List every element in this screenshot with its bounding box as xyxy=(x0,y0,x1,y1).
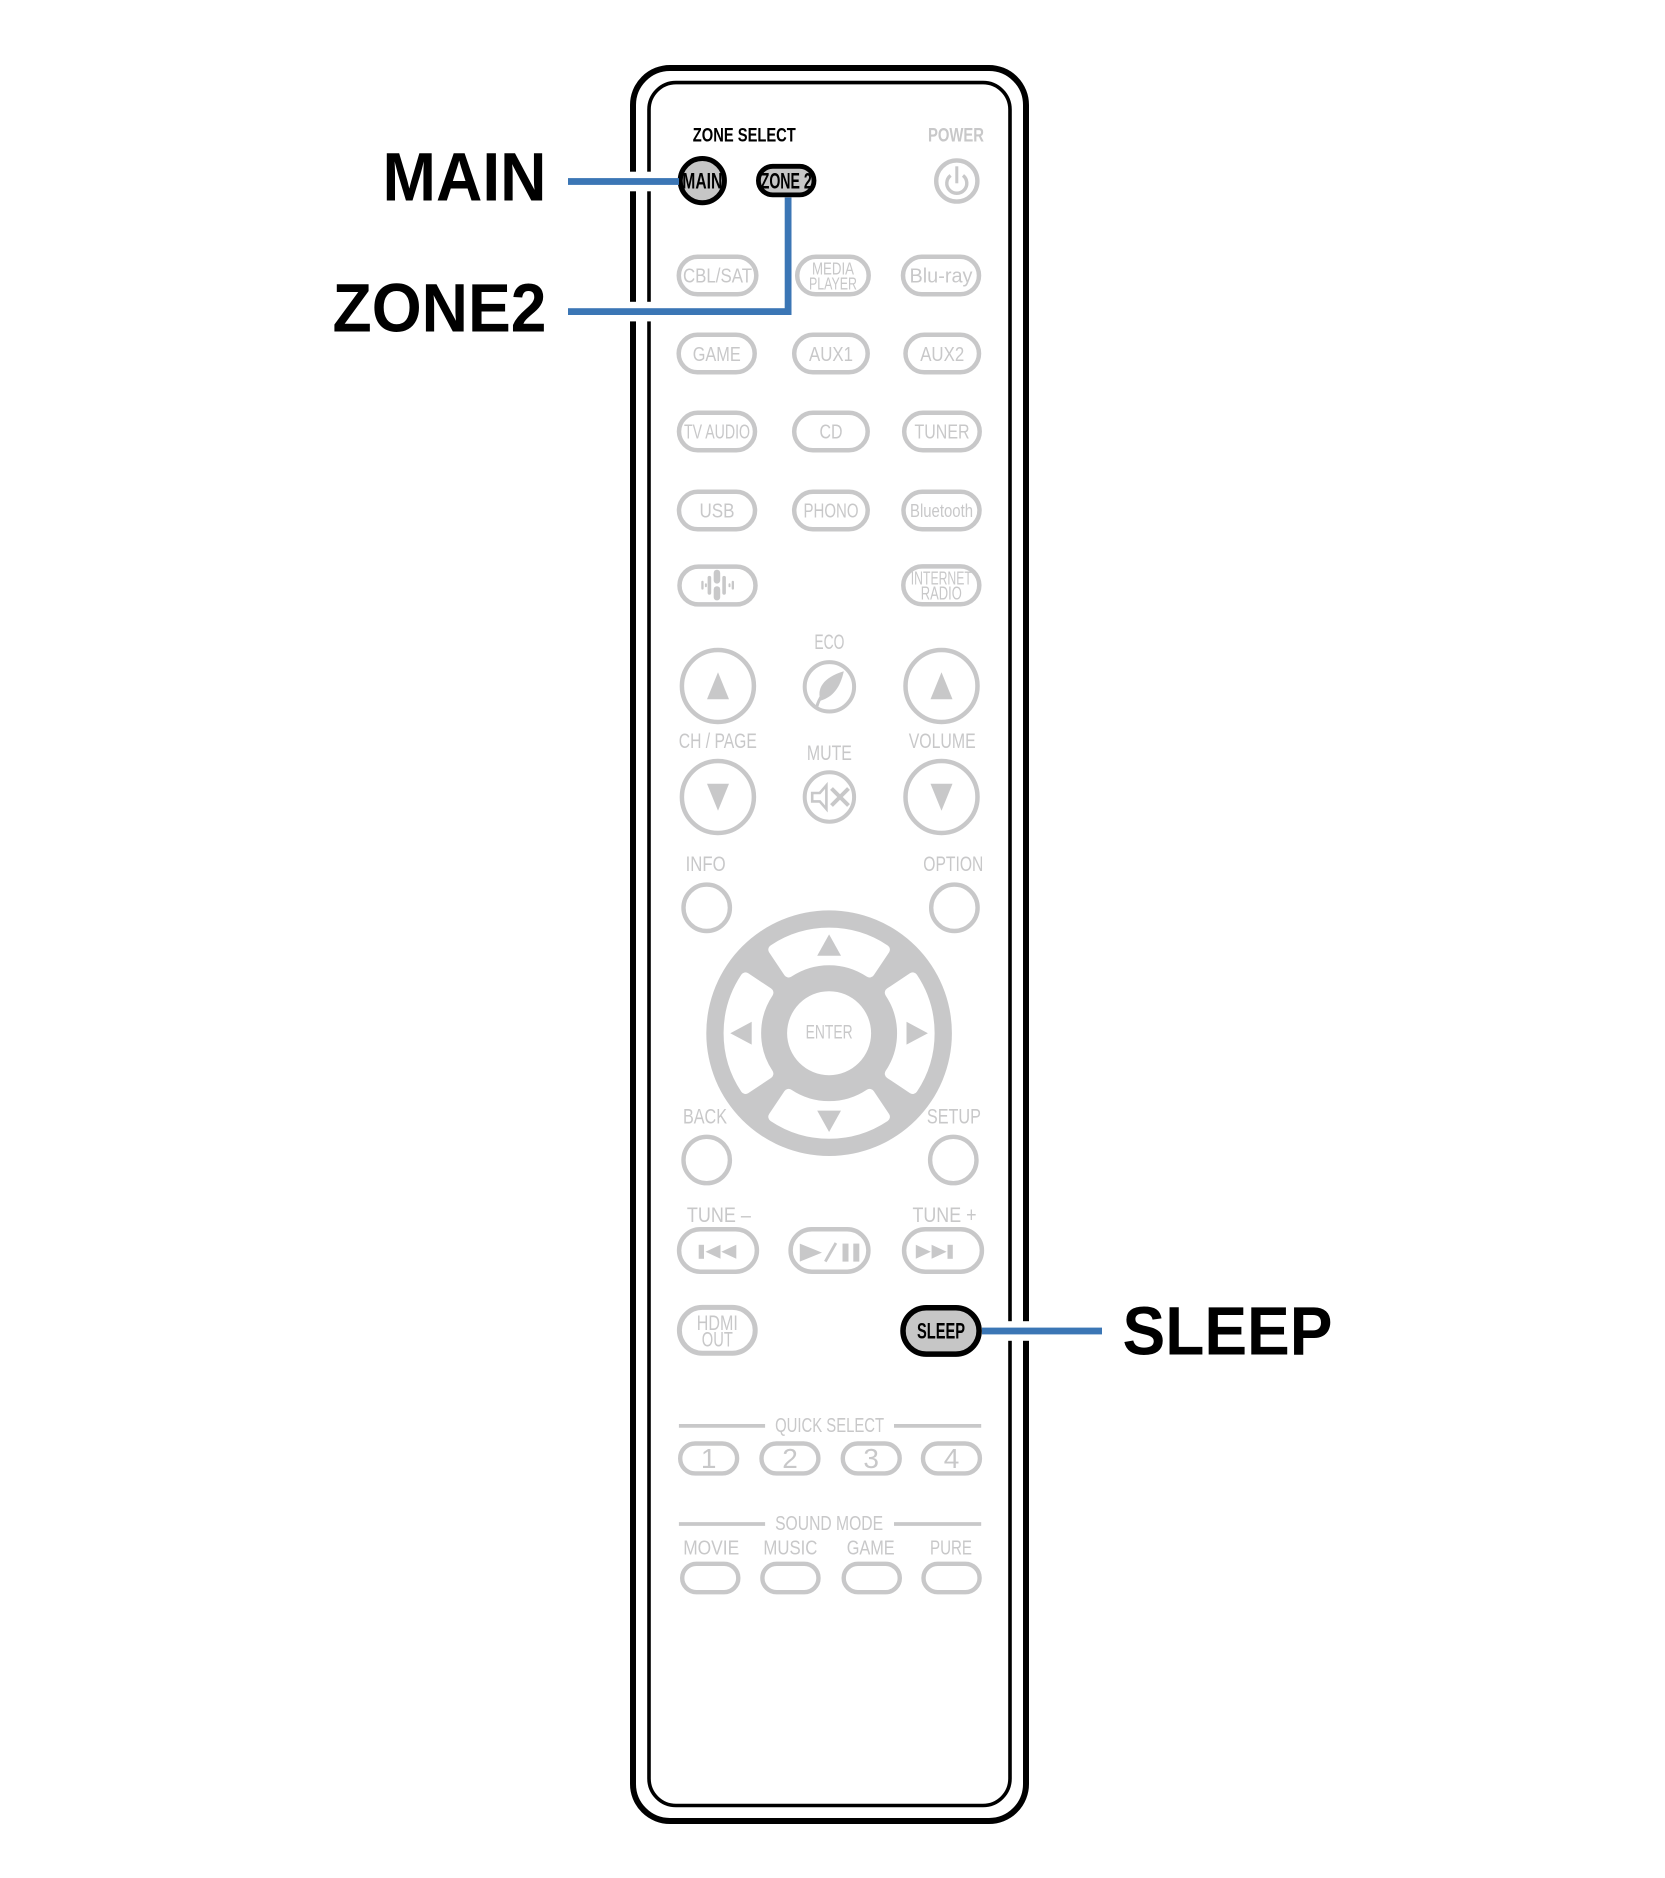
svg-text:BACK: BACK xyxy=(683,1105,727,1128)
svg-text:ZONE 2: ZONE 2 xyxy=(761,169,812,194)
svg-text:PURE: PURE xyxy=(930,1538,972,1560)
svg-text:TUNE –: TUNE – xyxy=(687,1204,751,1227)
svg-text:3: 3 xyxy=(863,1443,879,1474)
svg-text:Blu-ray: Blu-ray xyxy=(910,265,974,288)
svg-text:CBL/SAT: CBL/SAT xyxy=(683,265,752,288)
svg-text:4: 4 xyxy=(944,1443,960,1474)
svg-text:INFO: INFO xyxy=(686,853,726,876)
svg-text:MUTE: MUTE xyxy=(807,742,852,765)
svg-text:QUICK SELECT: QUICK SELECT xyxy=(775,1415,884,1437)
svg-text:POWER: POWER xyxy=(928,125,984,147)
svg-text:RADIO: RADIO xyxy=(921,583,962,603)
svg-text:ZONE SELECT: ZONE SELECT xyxy=(693,125,796,147)
svg-text:SOUND MODE: SOUND MODE xyxy=(775,1513,883,1535)
svg-text:CD: CD xyxy=(820,421,843,444)
svg-text:ECO: ECO xyxy=(814,631,844,654)
svg-text:AUX1: AUX1 xyxy=(809,343,853,366)
svg-text:GAME: GAME xyxy=(693,343,741,366)
svg-text:2: 2 xyxy=(782,1443,798,1474)
svg-text:CH / PAGE: CH / PAGE xyxy=(679,730,757,753)
svg-text:TV AUDIO: TV AUDIO xyxy=(684,421,750,444)
svg-text:1: 1 xyxy=(701,1443,717,1474)
svg-text:SLEEP: SLEEP xyxy=(917,1319,965,1344)
svg-text:PLAYER: PLAYER xyxy=(809,274,857,294)
svg-text:ENTER: ENTER xyxy=(806,1022,853,1044)
svg-text:SLEEP: SLEEP xyxy=(1123,1292,1333,1369)
svg-text:TUNE +: TUNE + xyxy=(913,1204,977,1227)
svg-text:SETUP: SETUP xyxy=(927,1105,981,1128)
svg-text:VOLUME: VOLUME xyxy=(909,730,976,753)
svg-text:MUSIC: MUSIC xyxy=(763,1538,817,1560)
svg-text:Bluetooth: Bluetooth xyxy=(910,500,973,521)
svg-text:MOVIE: MOVIE xyxy=(683,1538,739,1560)
svg-text:ZONE2: ZONE2 xyxy=(333,270,547,347)
svg-text:MAIN: MAIN xyxy=(383,139,547,216)
svg-text:AUX2: AUX2 xyxy=(920,343,964,366)
svg-text:OPTION: OPTION xyxy=(923,853,983,876)
svg-text:OUT: OUT xyxy=(702,1329,733,1352)
svg-text:GAME: GAME xyxy=(847,1538,895,1560)
svg-text:PHONO: PHONO xyxy=(804,500,859,523)
svg-text:USB: USB xyxy=(700,500,735,523)
svg-text:TUNER: TUNER xyxy=(915,421,970,444)
svg-text:MAIN: MAIN xyxy=(682,169,722,194)
